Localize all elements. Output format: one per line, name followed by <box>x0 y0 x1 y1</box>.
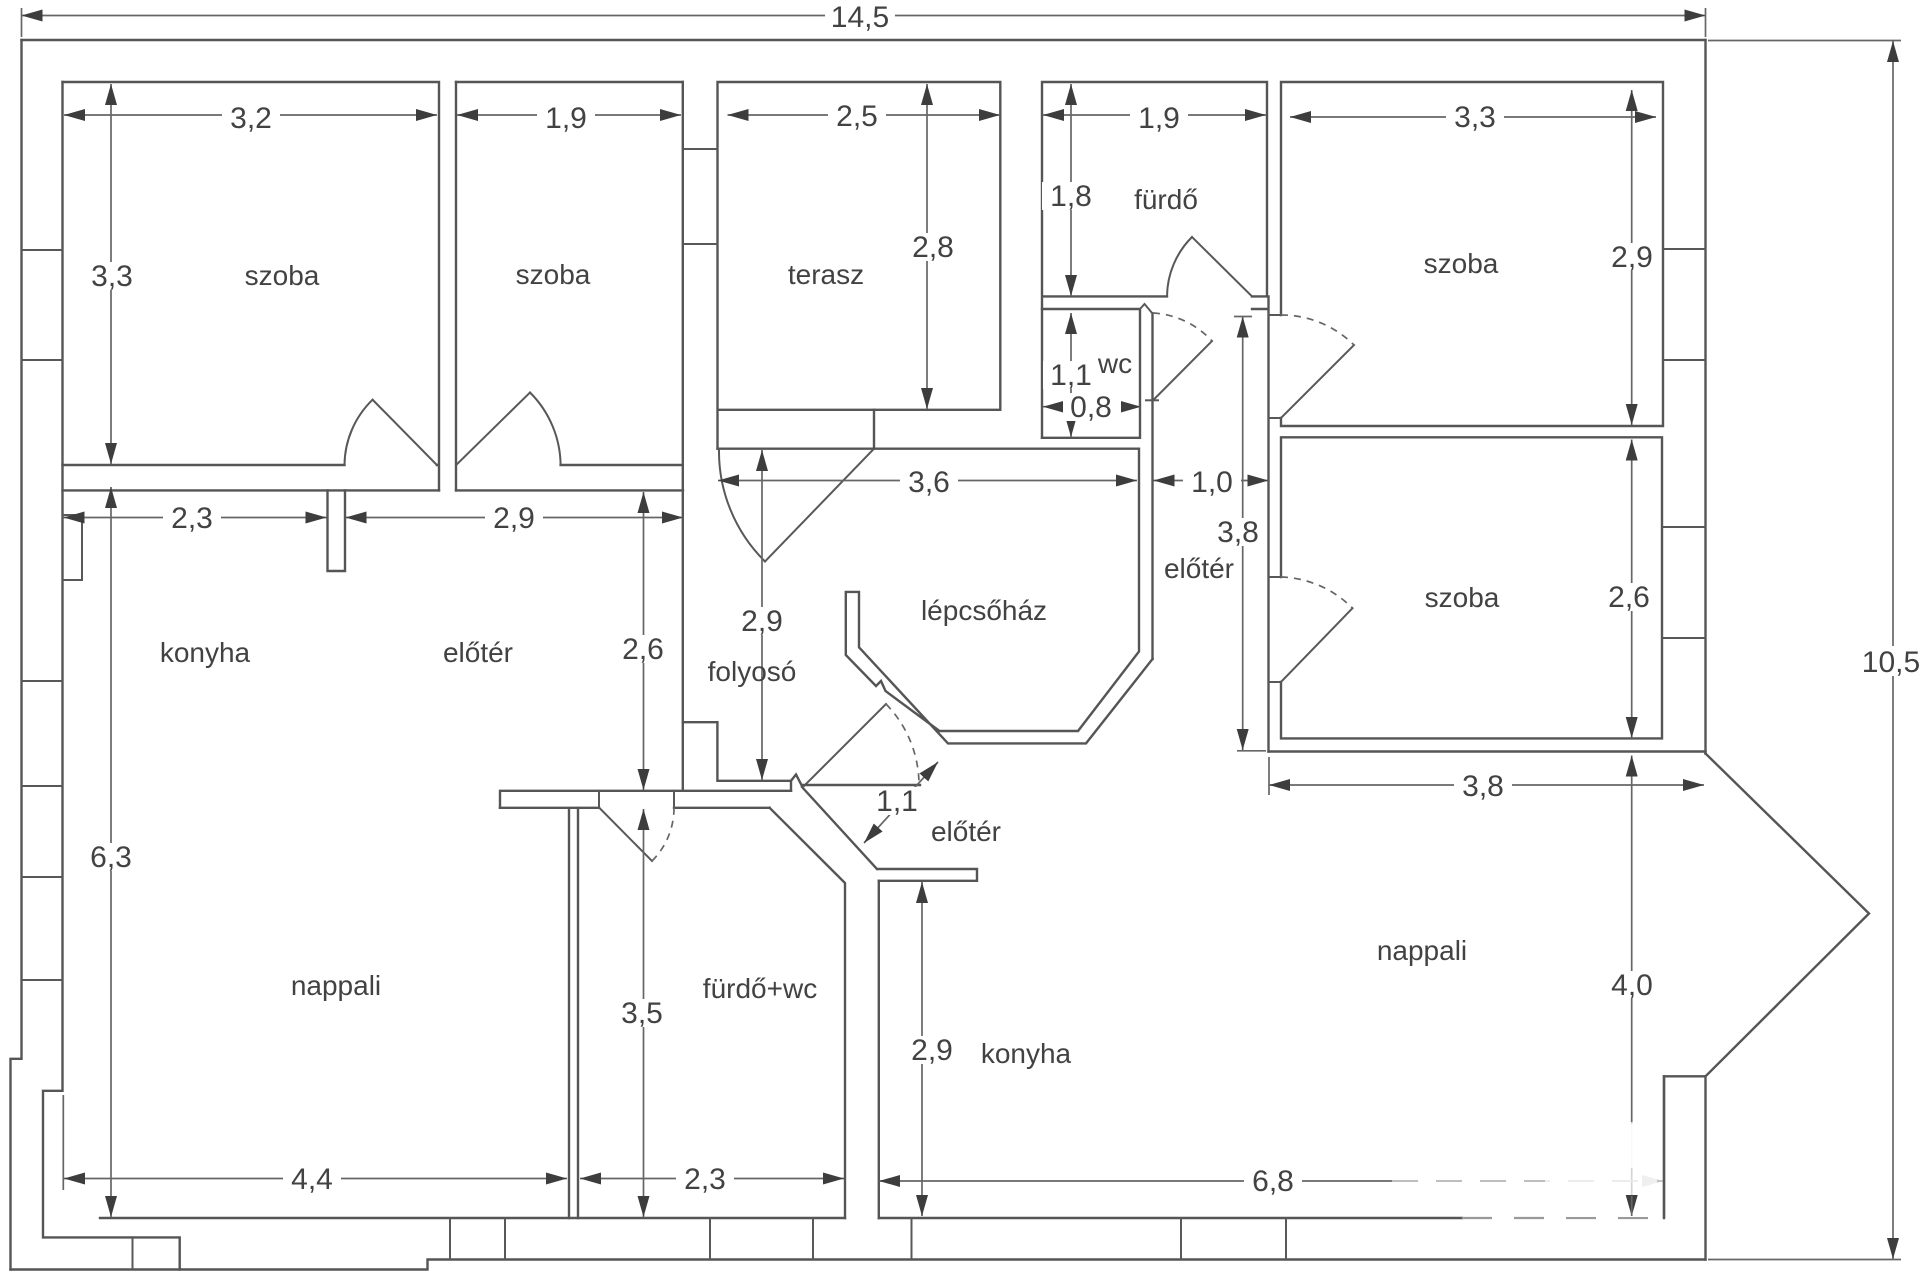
svg-text:2,9: 2,9 <box>493 502 535 535</box>
svg-text:konyha: konyha <box>160 637 251 668</box>
svg-text:6,8: 6,8 <box>1252 1165 1294 1198</box>
svg-text:3,8: 3,8 <box>1462 770 1504 803</box>
svg-text:fürdő: fürdő <box>1134 184 1198 215</box>
svg-text:2,9: 2,9 <box>741 605 783 638</box>
svg-text:előtér: előtér <box>1164 553 1234 584</box>
svg-text:4,0: 4,0 <box>1611 969 1653 1002</box>
svg-text:konyha: konyha <box>981 1038 1072 1069</box>
svg-text:3,3: 3,3 <box>91 260 133 293</box>
svg-text:2,5: 2,5 <box>836 100 878 133</box>
svg-text:1,9: 1,9 <box>545 102 587 135</box>
svg-text:előtér: előtér <box>931 816 1001 847</box>
svg-text:szoba: szoba <box>245 260 320 291</box>
svg-text:2,9: 2,9 <box>911 1034 953 1067</box>
svg-text:folyosó: folyosó <box>708 656 797 687</box>
svg-text:2,6: 2,6 <box>1608 581 1650 614</box>
svg-text:2,9: 2,9 <box>1611 241 1653 274</box>
svg-text:lépcsőház: lépcsőház <box>921 595 1047 626</box>
svg-text:3,2: 3,2 <box>230 102 272 135</box>
svg-text:wc: wc <box>1097 348 1132 379</box>
svg-text:fürdő+wc: fürdő+wc <box>703 973 817 1004</box>
svg-text:14,5: 14,5 <box>831 1 889 34</box>
svg-text:1,8: 1,8 <box>1050 180 1092 213</box>
svg-text:2,3: 2,3 <box>684 1163 726 1196</box>
svg-text:3,6: 3,6 <box>908 466 950 499</box>
svg-text:előtér: előtér <box>443 637 513 668</box>
svg-text:nappali: nappali <box>1377 935 1467 966</box>
svg-text:szoba: szoba <box>516 259 591 290</box>
svg-text:1,1: 1,1 <box>1050 359 1092 392</box>
svg-text:4,4: 4,4 <box>291 1163 333 1196</box>
svg-text:2,6: 2,6 <box>622 633 664 666</box>
svg-text:nappali: nappali <box>291 970 381 1001</box>
svg-text:1,9: 1,9 <box>1138 102 1180 135</box>
svg-text:1,1: 1,1 <box>876 785 918 818</box>
svg-text:3,5: 3,5 <box>621 997 663 1030</box>
svg-text:2,8: 2,8 <box>912 231 954 264</box>
svg-text:1,0: 1,0 <box>1191 466 1233 499</box>
svg-text:0,8: 0,8 <box>1070 391 1112 424</box>
svg-text:3,8: 3,8 <box>1217 516 1259 549</box>
svg-text:terasz: terasz <box>788 259 864 290</box>
svg-text:2,3: 2,3 <box>171 502 213 535</box>
svg-text:3,3: 3,3 <box>1454 101 1496 134</box>
svg-text:6,3: 6,3 <box>90 841 132 874</box>
svg-text:szoba: szoba <box>1425 582 1500 613</box>
svg-text:10,5: 10,5 <box>1862 646 1920 679</box>
svg-text:szoba: szoba <box>1424 248 1499 279</box>
